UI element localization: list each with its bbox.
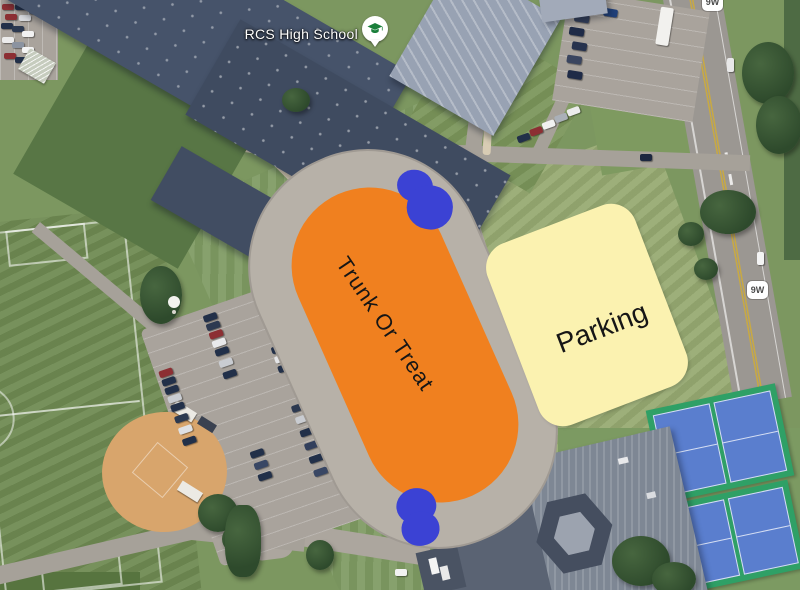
tree <box>282 88 310 112</box>
entrance-marker-south <box>390 485 446 551</box>
tree <box>140 266 182 324</box>
car <box>727 58 734 72</box>
route-shield-9w-north: 9W <box>702 0 723 11</box>
car <box>640 154 652 161</box>
tree <box>306 540 334 570</box>
car <box>757 252 764 265</box>
tree <box>742 42 794 104</box>
car <box>395 569 407 576</box>
tree <box>678 222 704 246</box>
tree <box>756 96 800 154</box>
graduation-cap-icon <box>366 20 384 38</box>
tree <box>700 190 756 234</box>
light-tower <box>168 296 180 308</box>
hedge <box>225 505 261 577</box>
entrance-marker-north <box>386 164 461 238</box>
school-poi-pin[interactable] <box>362 16 388 52</box>
tree <box>694 258 718 280</box>
satellite-map[interactable]: Trunk Or Treat Parking RCS High School 9… <box>0 0 800 590</box>
route-shield-9w-mid: 9W <box>747 281 768 299</box>
poi-label-rcs-high-school[interactable]: RCS High School <box>150 26 358 42</box>
tree <box>652 562 696 590</box>
